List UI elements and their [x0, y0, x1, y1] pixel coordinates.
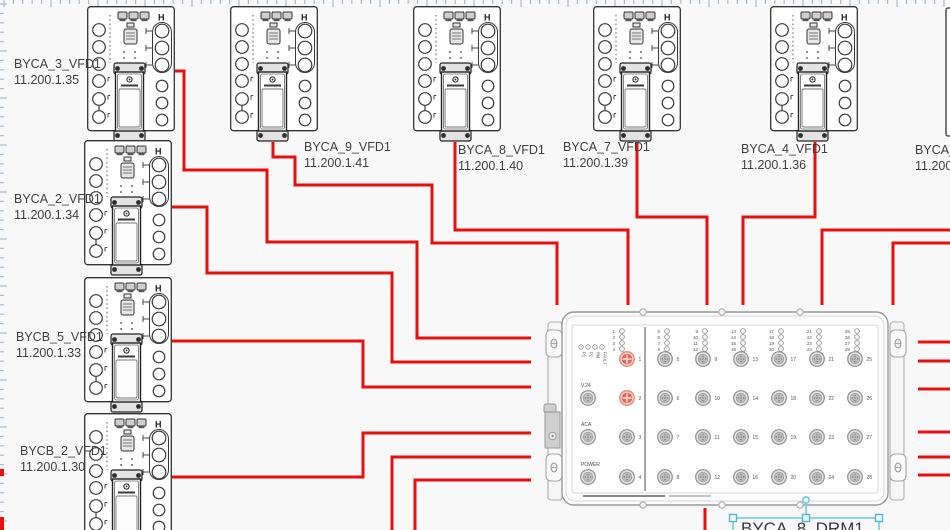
port-number: 14	[753, 396, 759, 402]
drm-port-9[interactable]	[696, 352, 711, 367]
side-port-label: ACA	[581, 422, 592, 428]
svg-text:1: 1	[612, 329, 615, 334]
port-number: 24	[829, 475, 835, 481]
port-led	[855, 329, 860, 334]
device-BYCA_8_DRM1[interactable]: 1234567891011121314151617181920212223242…	[544, 309, 906, 508]
diagram-scene: H	[0, 0, 950, 530]
port-number: 19	[791, 435, 797, 441]
drm-port-ACA[interactable]	[581, 430, 596, 445]
drm-port-26[interactable]	[848, 391, 863, 406]
case-screw	[640, 502, 646, 508]
port-number: 25	[867, 357, 873, 363]
svg-text:18: 18	[769, 335, 775, 340]
drm-port-V.24[interactable]	[581, 391, 596, 406]
case-screw	[719, 309, 725, 315]
svg-text:24: 24	[807, 347, 813, 352]
port-led	[779, 341, 784, 346]
drm-port-7[interactable]	[658, 430, 673, 445]
svg-text:20: 20	[769, 347, 775, 352]
svg-text:12: 12	[693, 347, 699, 352]
port-led	[817, 329, 822, 334]
port-led	[703, 329, 708, 334]
status-led-FAULT	[600, 345, 605, 350]
drm-port-3[interactable]	[620, 430, 635, 445]
svg-text:19: 19	[769, 341, 775, 346]
svg-text:6: 6	[657, 335, 660, 340]
drm-port-10[interactable]	[696, 391, 711, 406]
drm-port-11[interactable]	[696, 430, 711, 445]
port-number: 26	[867, 396, 873, 402]
drm-port-5[interactable]	[658, 352, 673, 367]
svg-text:15: 15	[731, 341, 737, 346]
drm-port-27[interactable]	[848, 430, 863, 445]
status-led-P1	[579, 345, 584, 350]
drm-port-23[interactable]	[810, 430, 825, 445]
drm-port-12[interactable]	[696, 470, 711, 485]
drm-port-14[interactable]	[734, 391, 749, 406]
port-number: 13	[753, 357, 759, 363]
device-BYCB_5_VFD1[interactable]	[85, 278, 172, 412]
device-BYCA_4_VFD1[interactable]	[771, 7, 858, 141]
status-led-label: RM	[596, 352, 601, 359]
port-number: 23	[829, 435, 835, 441]
svg-text:14: 14	[731, 335, 737, 340]
cable-right-edge[interactable]	[822, 230, 950, 305]
port-number: 9	[715, 357, 718, 363]
port-led	[779, 329, 784, 334]
diagram-canvas[interactable]: H	[0, 0, 950, 530]
port-number: 15	[753, 435, 759, 441]
svg-text:21: 21	[807, 329, 813, 334]
svg-text:16: 16	[731, 347, 737, 352]
svg-text:10: 10	[693, 335, 699, 340]
svg-text:25: 25	[845, 329, 851, 334]
port-number: 20	[791, 475, 797, 481]
drm-port-17[interactable]	[772, 352, 787, 367]
svg-text:27: 27	[845, 341, 851, 346]
status-led-P2	[586, 345, 591, 350]
case-screw	[640, 309, 646, 315]
port-number: 28	[867, 475, 873, 481]
status-led-label: FAULT	[603, 352, 608, 365]
port-number: 16	[753, 475, 759, 481]
drm-port-POWER[interactable]	[581, 470, 596, 485]
svg-text:7: 7	[657, 341, 660, 346]
port-number: 7	[677, 435, 680, 441]
svg-text:13: 13	[731, 329, 737, 334]
port-led	[703, 347, 708, 352]
side-port-label: V.24	[581, 383, 591, 389]
drm-port-13[interactable]	[734, 352, 749, 367]
svg-text:8: 8	[657, 347, 660, 352]
port-led	[665, 329, 670, 334]
cable-bottom-edge[interactable]	[415, 480, 531, 530]
case-screw	[719, 502, 725, 508]
svg-text:3: 3	[612, 341, 615, 346]
port-number: 11	[715, 435, 720, 441]
svg-text:11: 11	[693, 341, 698, 346]
case-screw	[797, 502, 803, 508]
cable-right-edge[interactable]	[893, 243, 950, 305]
drm-port-8[interactable]	[658, 470, 673, 485]
drm-port-6[interactable]	[658, 391, 673, 406]
port-led	[855, 341, 860, 346]
svg-text:9: 9	[695, 329, 698, 334]
port-led	[741, 341, 746, 346]
drm-port-28[interactable]	[848, 470, 863, 485]
ruler-red-mark	[0, 517, 4, 530]
svg-text:28: 28	[845, 347, 851, 352]
status-led-RM	[593, 345, 598, 350]
status-led-label: P2	[589, 352, 594, 358]
port-number: 5	[677, 357, 680, 363]
drm-port-22[interactable]	[810, 391, 825, 406]
port-number: 12	[715, 475, 721, 481]
port-number: 4	[639, 475, 642, 481]
device-BYCA_8_VFD1[interactable]	[414, 7, 501, 141]
port-led	[741, 335, 746, 340]
port-number: 27	[867, 435, 873, 441]
side-port-label: POWER	[581, 462, 600, 468]
cable-BYCB_5_VFD1[interactable]	[172, 341, 531, 387]
ruler-red-mark	[0, 469, 4, 476]
port-led	[703, 335, 708, 340]
svg-text:2: 2	[612, 335, 615, 340]
drm-port-24[interactable]	[810, 470, 825, 485]
cable-BYCB_2_VFD1[interactable]	[172, 433, 531, 477]
device-label-BYCA_5_: BYCA_5_11.200.1	[915, 143, 950, 173]
device-BYCA_9_VFD1[interactable]	[231, 7, 318, 141]
status-led-label: P1	[582, 352, 587, 358]
port-led	[741, 329, 746, 334]
port-led	[817, 341, 822, 346]
port-led	[620, 335, 625, 340]
port-led	[855, 347, 860, 352]
drm-port-4[interactable]	[620, 470, 635, 485]
selection-handle[interactable]	[803, 515, 810, 522]
port-led	[620, 341, 625, 346]
port-led	[779, 335, 784, 340]
port-number: 8	[677, 475, 680, 481]
port-led	[703, 341, 708, 346]
port-number: 17	[791, 357, 797, 363]
drm-port-19[interactable]	[772, 430, 787, 445]
selection-handle[interactable]	[730, 515, 737, 522]
drm-port-2[interactable]	[620, 391, 635, 406]
drm-port-21[interactable]	[810, 352, 825, 367]
anchor-handle[interactable]	[803, 497, 809, 503]
svg-text:26: 26	[845, 335, 851, 340]
svg-text:23: 23	[807, 341, 813, 346]
port-number: 2	[639, 396, 642, 402]
selection-handle[interactable]	[876, 515, 883, 522]
port-led	[817, 347, 822, 352]
port-led	[620, 329, 625, 334]
device-BYCA_3_VFD1[interactable]	[88, 7, 175, 141]
port-number: 10	[715, 396, 721, 402]
cable-BYCA_7_VFD1[interactable]	[637, 142, 707, 305]
port-led	[779, 347, 784, 352]
port-led	[817, 335, 822, 340]
port-number: 22	[829, 396, 835, 402]
drm-port-20[interactable]	[772, 470, 787, 485]
device-BYCA_5_[interactable]	[946, 8, 950, 136]
device-label-BYCA_9_VFD1: BYCA_9_VFD111.200.1.41	[304, 140, 391, 170]
device-BYCB_2_VFD1[interactable]	[85, 414, 172, 530]
port-led	[620, 347, 625, 352]
svg-text:5: 5	[657, 329, 660, 334]
svg-text:22: 22	[807, 335, 813, 340]
drm-port-18[interactable]	[772, 391, 787, 406]
drm-port-1[interactable]	[620, 352, 635, 367]
port-number: 6	[677, 396, 680, 402]
drm-port-16[interactable]	[734, 470, 749, 485]
cable-bottom-edge[interactable]	[392, 457, 531, 530]
case-screw	[797, 309, 803, 315]
port-led	[741, 347, 746, 352]
port-led	[665, 335, 670, 340]
device-BYCA_2_VFD1[interactable]	[85, 141, 172, 275]
port-led	[855, 335, 860, 340]
drm-port-15[interactable]	[734, 430, 749, 445]
port-number: 21	[829, 357, 835, 363]
port-led	[665, 347, 670, 352]
device-BYCA_7_VFD1[interactable]	[594, 7, 681, 141]
port-led	[665, 341, 670, 346]
svg-text:4: 4	[612, 347, 615, 352]
device-label-BYCA_8_VFD1: BYCA_8_VFD111.200.1.40	[458, 143, 545, 173]
drm-port-25[interactable]	[848, 352, 863, 367]
din-clamp	[545, 412, 560, 448]
port-number: 18	[791, 396, 797, 402]
svg-text:17: 17	[769, 329, 775, 334]
port-number: 1	[639, 357, 642, 363]
port-number: 3	[639, 435, 642, 441]
